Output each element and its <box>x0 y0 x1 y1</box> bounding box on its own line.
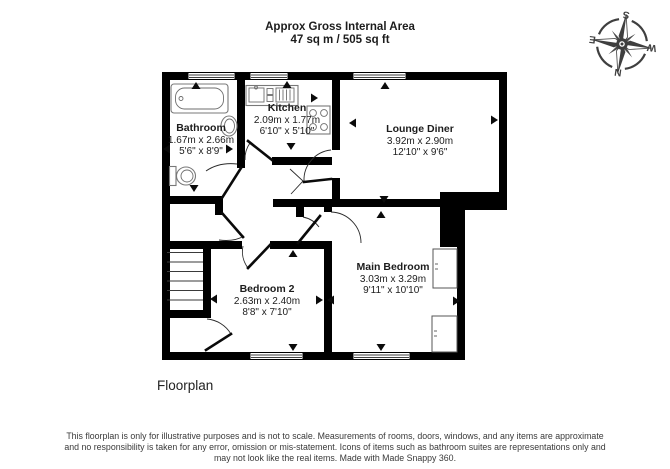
window-lounge <box>353 73 406 80</box>
page-title: Approx Gross Internal Area 47 sq m / 505… <box>5 21 670 47</box>
arrow-up-icon <box>283 81 292 88</box>
bedroom2-door <box>242 245 270 268</box>
lounge-door <box>290 150 331 194</box>
room-imperial: 9'11" x 10'10" <box>363 285 423 296</box>
bathroom-door <box>206 164 241 198</box>
wardrobe-2 <box>432 316 457 352</box>
room-imperial: 5'6" x 8'9" <box>179 146 223 157</box>
room-name: Lounge Diner <box>355 124 485 136</box>
room-imperial: 6'10" x 5'10" <box>260 126 315 137</box>
floorplan-page: { "header": { "title_line1": "Approx Gro… <box>0 0 670 469</box>
arrow-right-icon <box>491 116 498 125</box>
wall-right-lower <box>457 192 465 360</box>
window-bedroom2 <box>250 353 303 360</box>
room-label-kitchen: Kitchen 2.09m x 1.77m 6'10" x 5'10" <box>227 103 347 138</box>
room-imperial: 12'10" x 9'6" <box>393 147 448 158</box>
window-main-bedroom <box>353 353 410 360</box>
compass-south-label: S <box>622 8 630 20</box>
room-label-lounge-diner: Lounge Diner 3.92m x 2.90m 12'10" x 9'6" <box>355 124 485 159</box>
arrow-up-icon <box>381 82 390 89</box>
window-bathroom <box>188 73 235 80</box>
room-metric: 2.63m x 2.40m <box>234 296 300 307</box>
arrow-up-icon <box>377 211 386 218</box>
wall-bath-bottom <box>162 196 223 204</box>
room-label-main-bedroom: Main Bedroom 3.03m x 3.29m 9'11" x 10'10… <box>328 262 458 297</box>
room-metric: 1.67m x 2.66m <box>168 135 234 146</box>
wall-bottom <box>162 352 465 360</box>
wall-kitchen-bottom <box>272 157 332 165</box>
room-metric: 2.09m x 1.77m <box>254 115 320 126</box>
gross-area-title: Approx Gross Internal Area <box>5 21 670 34</box>
main-bedroom-door <box>298 212 361 243</box>
entrance-door <box>206 319 231 350</box>
wall-hall-horizontal <box>273 199 440 207</box>
wall-right-upper <box>499 72 507 202</box>
arrow-up-icon <box>289 250 298 257</box>
wall-hall-nub <box>296 207 304 217</box>
arrow-down-icon <box>377 344 386 351</box>
wall-divider-stub <box>324 207 332 212</box>
floorplan-caption: Floorplan <box>157 378 213 393</box>
gross-area-value: 47 sq m / 505 sq ft <box>5 34 670 47</box>
room-name: Kitchen <box>227 103 347 115</box>
toilet <box>170 167 196 186</box>
arrow-down-icon <box>287 143 296 150</box>
room-imperial: 8'8" x 7'10" <box>242 307 291 318</box>
room-name: Bedroom 2 <box>207 284 327 296</box>
floorplan-canvas: N E S W <box>0 0 670 469</box>
room-metric: 3.92m x 2.90m <box>387 136 453 147</box>
room-metric: 3.03m x 3.29m <box>360 274 426 285</box>
disclaimer-text: This floorplan is only for illustrative … <box>0 431 670 463</box>
staircase <box>167 253 203 301</box>
wall-stairs-bottom <box>167 310 203 318</box>
wall-bed2-top-right <box>270 241 332 249</box>
arrow-down-icon <box>190 185 199 192</box>
room-name: Main Bedroom <box>328 262 458 274</box>
compass-north-label: N <box>614 66 623 78</box>
arrow-down-icon <box>289 344 298 351</box>
landing-door <box>219 213 244 241</box>
window-kitchen <box>250 73 288 80</box>
room-label-bedroom2: Bedroom 2 2.63m x 2.40m 8'8" x 7'10" <box>207 284 327 319</box>
arrow-right-icon <box>311 94 318 103</box>
